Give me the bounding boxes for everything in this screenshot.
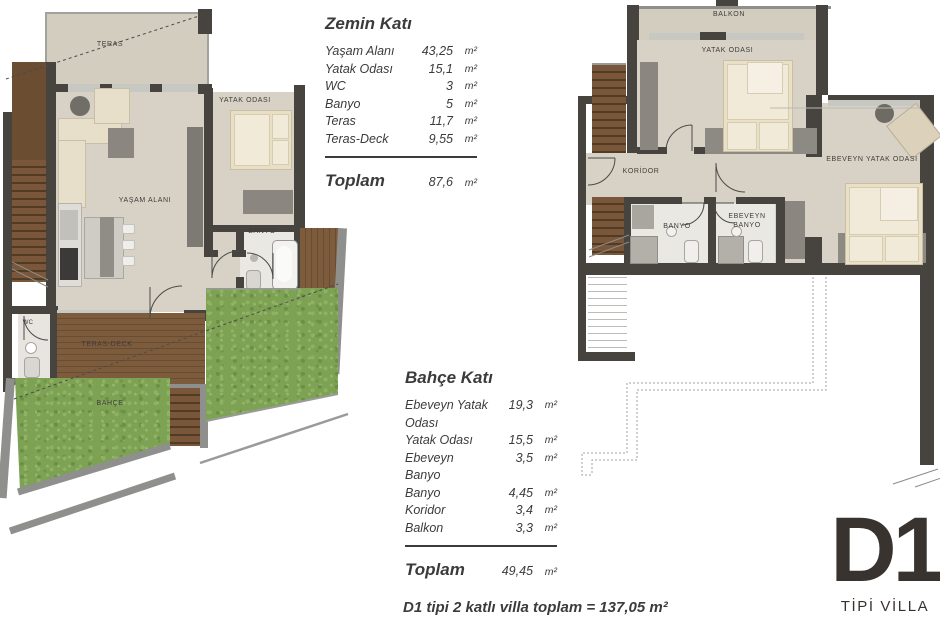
total-label: Toplam	[325, 171, 411, 191]
row-label: Ebeveyn Yatak Odası	[405, 397, 491, 432]
row-unit: m²	[453, 113, 477, 131]
total-unit: m²	[533, 566, 557, 578]
row-value: 15,1	[411, 61, 453, 79]
villa-type-subtitle: TİPİ VİLLA	[830, 598, 940, 615]
row-value: 5	[411, 96, 453, 114]
row-unit: m²	[533, 520, 557, 538]
row-label: Banyo	[325, 96, 411, 114]
row-value: 3,5	[491, 450, 533, 485]
table-row: Banyo 4,45 m²	[405, 485, 557, 503]
table-row: Yatak Odası 15,5 m²	[405, 432, 557, 450]
row-unit: m²	[453, 43, 477, 61]
row-value: 19,3	[491, 397, 533, 432]
row-label: Teras	[325, 113, 411, 131]
door-swing-arcs	[24, 251, 273, 340]
villa-type-badge: D1 TİPİ VİLLA	[830, 504, 940, 615]
total-label: Toplam	[405, 560, 491, 580]
row-label: Koridor	[405, 502, 491, 520]
row-value: 9,55	[411, 131, 453, 149]
total-unit: m²	[453, 177, 477, 189]
table-total-row: Toplam 49,45 m²	[405, 560, 557, 580]
stair-break-line	[12, 262, 48, 287]
row-value: 4,45	[491, 485, 533, 503]
table-title: Bahçe Katı	[405, 368, 557, 388]
section-dash-line	[14, 284, 338, 399]
row-unit: m²	[533, 502, 557, 520]
site-boundary-line	[206, 394, 338, 421]
table-row: Teras 11,7 m²	[325, 113, 477, 131]
row-unit: m²	[453, 78, 477, 96]
row-value: 11,7	[411, 113, 453, 131]
section-dash-line	[6, 15, 202, 79]
row-unit: m²	[453, 96, 477, 114]
row-unit: m²	[533, 397, 557, 432]
row-unit: m²	[453, 131, 477, 149]
villa-type-code: D1	[830, 504, 940, 598]
plan-sheet: TERAS YAŞAM ALANI YATAK ODASI BANYO WC T…	[0, 0, 940, 628]
ground-floor-table: Zemin Katı Yaşam Alanı 43,25 m² Yatak Od…	[325, 14, 477, 191]
total-value: 49,45	[491, 564, 533, 578]
table-row: Balkon 3,3 m²	[405, 520, 557, 538]
table-total-row: Toplam 87,6 m²	[325, 171, 477, 191]
row-unit: m²	[533, 450, 557, 485]
lower-floor-outline	[582, 277, 826, 475]
table-row: Yatak Odası 15,1 m²	[325, 61, 477, 79]
row-label: Yaşam Alanı	[325, 43, 411, 61]
row-unit: m²	[453, 61, 477, 79]
table-title: Zemin Katı	[325, 14, 477, 34]
row-label: Banyo	[405, 485, 491, 503]
table-row: Ebeveyn Yatak Odası 19,3 m²	[405, 397, 557, 432]
site-boundary-line	[893, 469, 940, 487]
door-swing-arcs	[588, 125, 745, 225]
row-label: Ebeveyn Banyo	[405, 450, 491, 485]
row-label: Yatak Odası	[405, 432, 491, 450]
row-label: WC	[325, 78, 411, 96]
table-row: Banyo 5 m²	[325, 96, 477, 114]
row-unit: m²	[533, 432, 557, 450]
row-value: 3,3	[491, 520, 533, 538]
table-row: Ebeveyn Banyo 3,5 m²	[405, 450, 557, 485]
site-boundary-line	[200, 414, 348, 463]
table-row: Yaşam Alanı 43,25 m²	[325, 43, 477, 61]
row-value: 43,25	[411, 43, 453, 61]
row-label: Yatak Odası	[325, 61, 411, 79]
table-row: Teras-Deck 9,55 m²	[325, 131, 477, 149]
table-row: WC 3 m²	[325, 78, 477, 96]
villa-total-summary: D1 tipi 2 katlı villa toplam = 137,05 m²	[403, 599, 703, 616]
row-value: 3,4	[491, 502, 533, 520]
garden-floor-table: Bahçe Katı Ebeveyn Yatak Odası 19,3 m² Y…	[405, 368, 557, 580]
table-row: Koridor 3,4 m²	[405, 502, 557, 520]
row-value: 15,5	[491, 432, 533, 450]
row-unit: m²	[533, 485, 557, 503]
row-value: 3	[411, 78, 453, 96]
row-label: Teras-Deck	[325, 131, 411, 149]
total-value: 87,6	[411, 175, 453, 189]
table-divider	[405, 545, 557, 547]
table-divider	[325, 156, 477, 158]
row-label: Balkon	[405, 520, 491, 538]
stair-break-line	[589, 235, 629, 257]
